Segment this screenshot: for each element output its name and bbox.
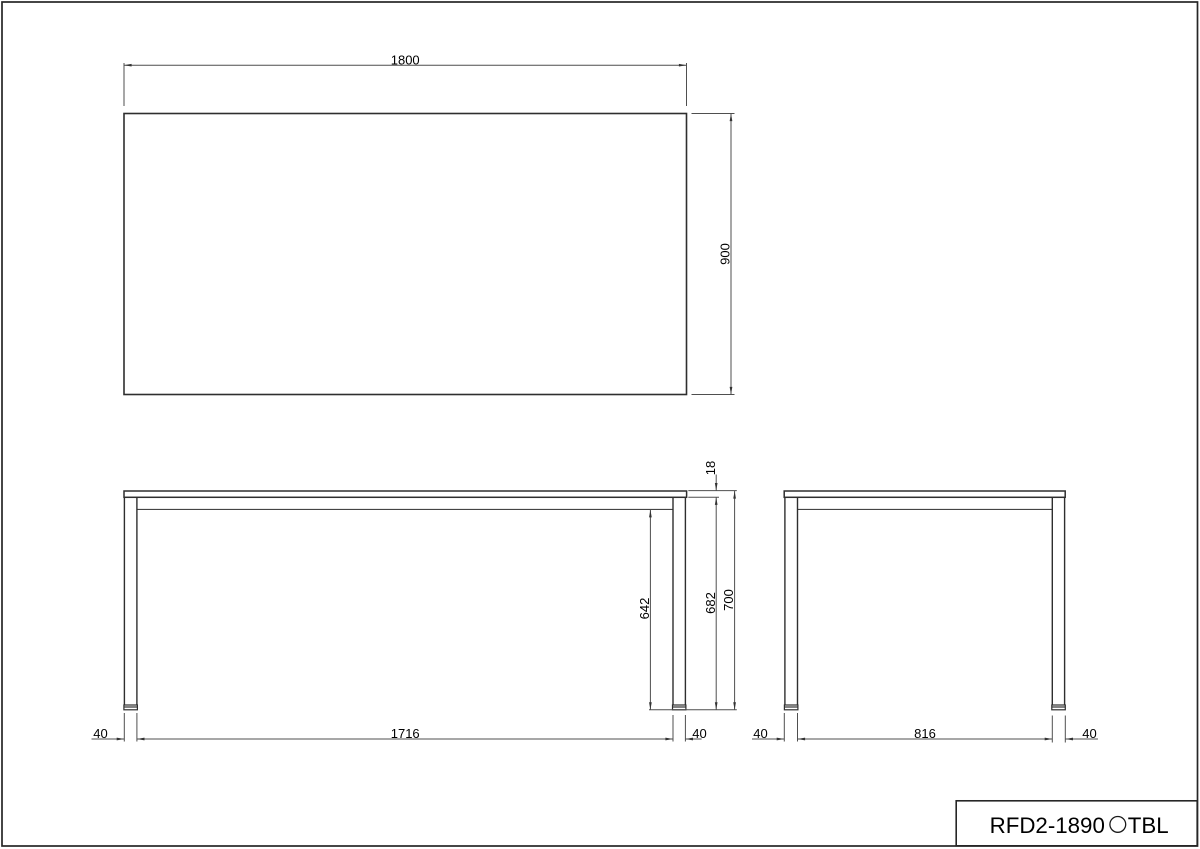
svg-text:40: 40 bbox=[753, 726, 767, 741]
svg-text:RFD2-1890: RFD2-1890 bbox=[990, 813, 1105, 838]
svg-text:18: 18 bbox=[703, 461, 718, 475]
svg-text:40: 40 bbox=[93, 726, 107, 741]
svg-text:40: 40 bbox=[1082, 726, 1096, 741]
svg-text:900: 900 bbox=[718, 243, 733, 265]
svg-text:682: 682 bbox=[703, 592, 718, 614]
svg-text:40: 40 bbox=[692, 726, 706, 741]
svg-text:642: 642 bbox=[637, 598, 652, 620]
svg-text:1800: 1800 bbox=[391, 53, 420, 68]
svg-text:700: 700 bbox=[721, 589, 736, 611]
svg-text:TBL: TBL bbox=[1128, 813, 1169, 838]
svg-text:816: 816 bbox=[914, 726, 936, 741]
svg-text:1716: 1716 bbox=[391, 726, 420, 741]
